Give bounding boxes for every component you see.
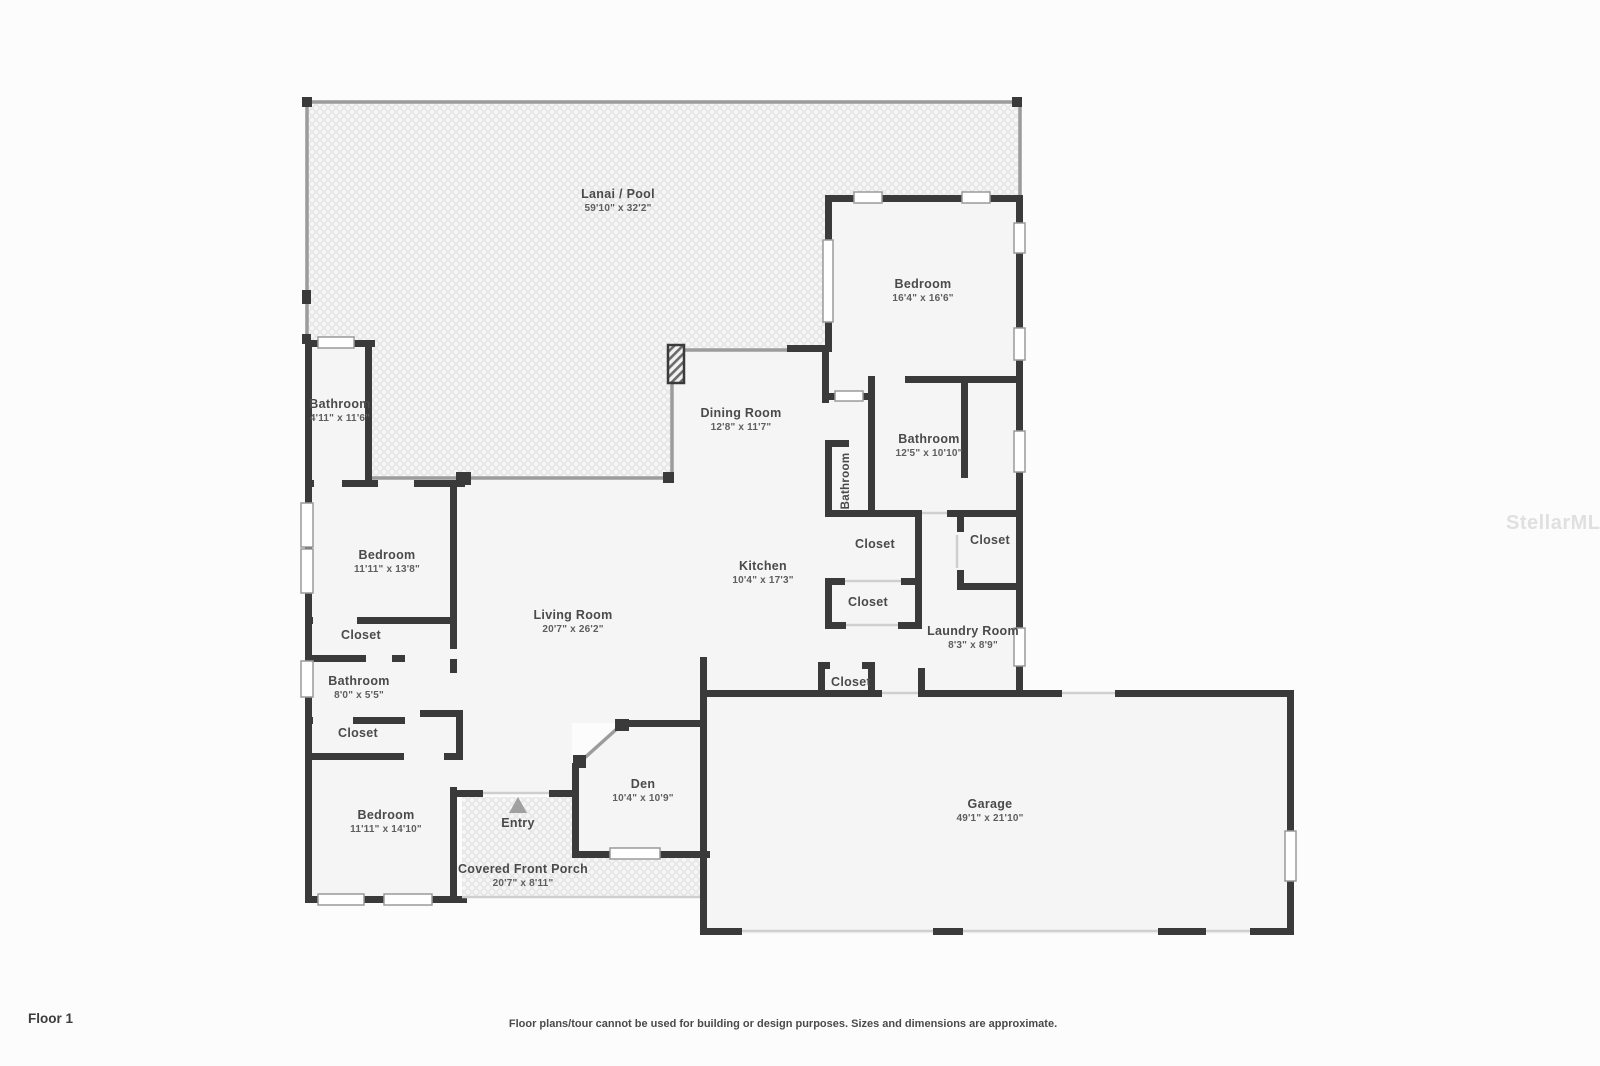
pillar [668, 345, 684, 383]
floorplan-page: Lanai / Pool 59'10" x 32'2" Bedroom 16'4… [0, 0, 1600, 1066]
disclaimer-text: Floor plans/tour cannot be used for buil… [0, 1018, 1566, 1030]
floorplan-canvas [0, 0, 1600, 1066]
watermark: StellarMLS [1506, 512, 1600, 535]
